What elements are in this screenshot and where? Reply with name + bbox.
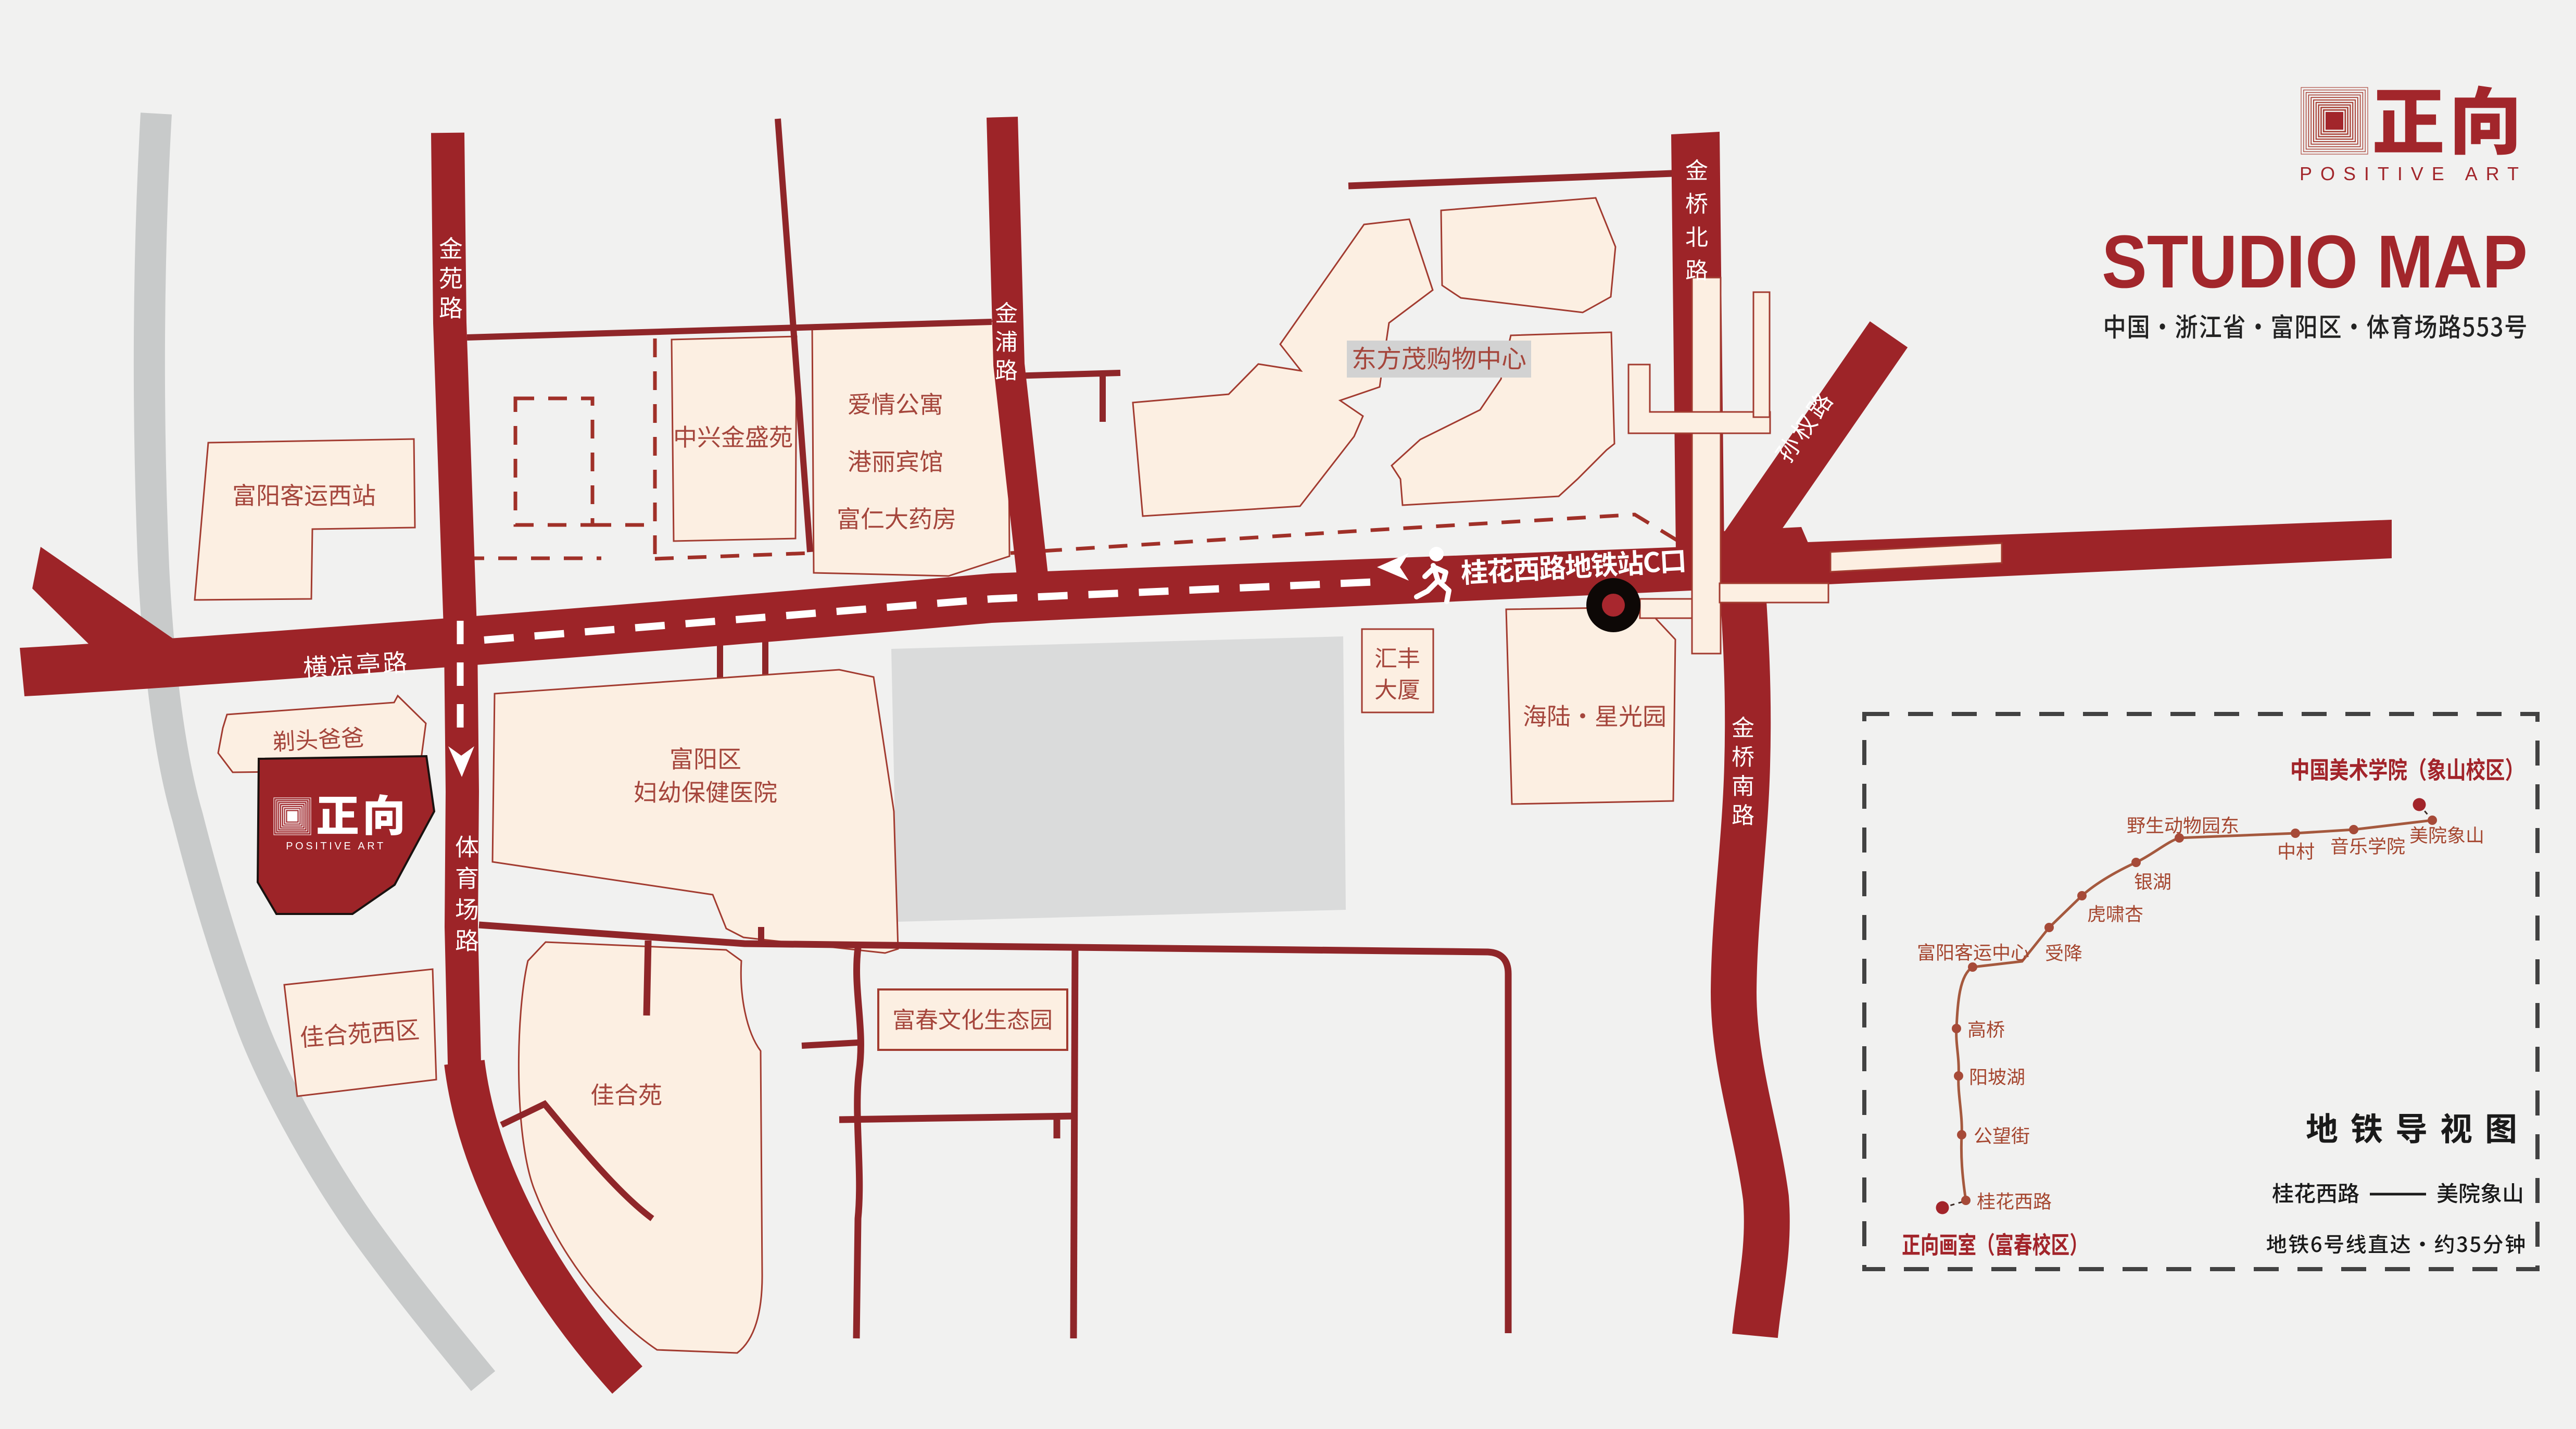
- svg-text:POSITIVE ART: POSITIVE ART: [286, 841, 386, 852]
- svg-text:STUDIO MAP: STUDIO MAP: [2102, 220, 2528, 304]
